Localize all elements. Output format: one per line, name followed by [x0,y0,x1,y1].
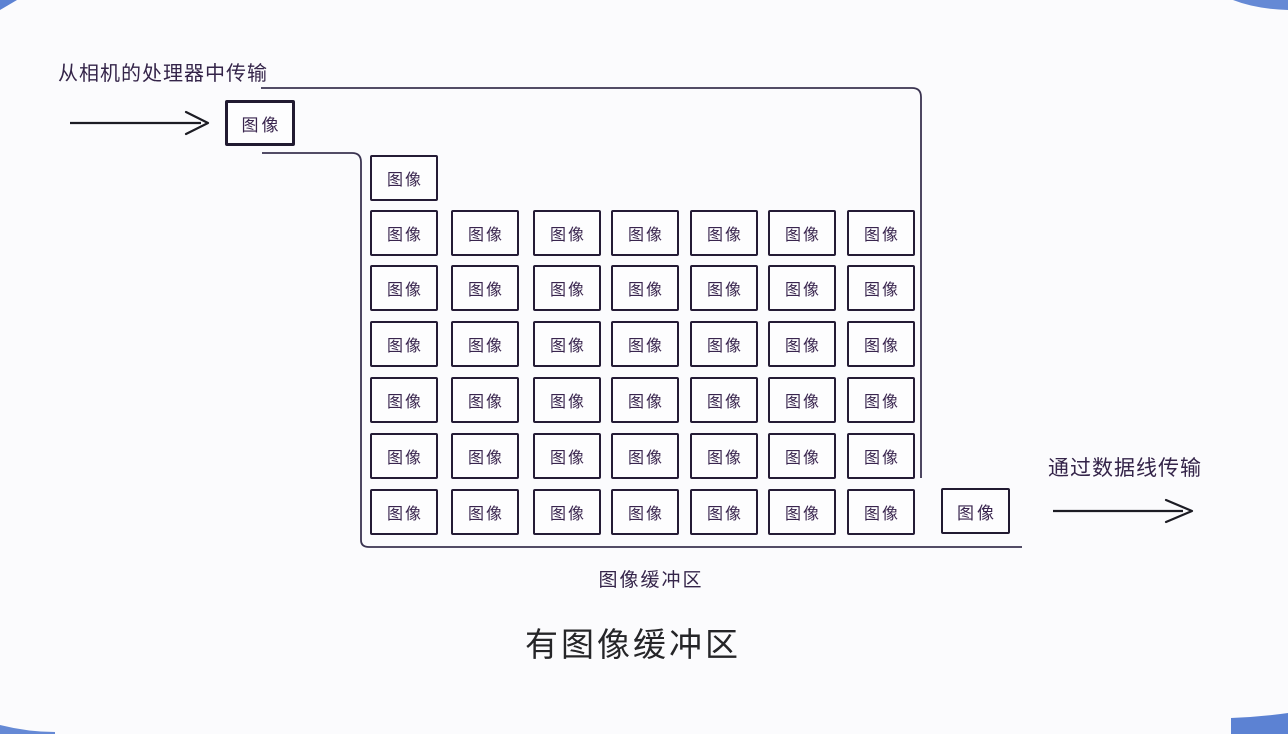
image-cell: 图像 [611,433,679,479]
image-cell: 图像 [768,489,836,535]
image-cell: 图像 [451,321,519,367]
image-cell: 图像 [768,433,836,479]
label-via-cable: 通过数据线传输 [1048,452,1202,482]
image-cell: 图像 [611,265,679,311]
image-cell: 图像 [611,489,679,535]
image-cell: 图像 [533,210,601,256]
buffer-caption: 图像缓冲区 [598,565,703,592]
diagram-title: 有图像缓冲区 [525,618,741,666]
image-cell: 图像 [451,377,519,423]
outgoing-arrow-icon [1053,500,1192,522]
image-cell: 图像 [533,489,601,535]
image-cell: 图像 [451,210,519,256]
image-cell: 图像 [847,321,915,367]
image-cell: 图像 [451,265,519,311]
image-cell: 图像 [768,265,836,311]
incoming-arrow-icon [70,112,208,134]
image-cell: 图像 [847,433,915,479]
image-cell: 图像 [370,210,438,256]
image-cell: 图像 [611,210,679,256]
image-cell: 图像 [370,321,438,367]
corner-accent-bottom-right [1231,713,1288,734]
diagram-canvas: 从相机的处理器中传输 通过数据线传输 图像缓冲区 有图像缓冲区 图像 图像图像图… [0,0,1288,734]
incoming-image-box: 图像 [225,100,295,146]
image-cell: 图像 [690,489,758,535]
image-cell: 图像 [847,377,915,423]
image-cell: 图像 [611,377,679,423]
image-cell: 图像 [847,489,915,535]
image-cell: 图像 [690,321,758,367]
image-cell: 图像 [690,265,758,311]
image-cell: 图像 [533,265,601,311]
image-cell: 图像 [690,433,758,479]
image-cell: 图像 [690,210,758,256]
image-cell: 图像 [847,210,915,256]
image-cell: 图像 [370,433,438,479]
image-cell: 图像 [533,321,601,367]
outgoing-image-box: 图像 [941,488,1010,534]
image-cell: 图像 [768,210,836,256]
label-from-camera: 从相机的处理器中传输 [58,57,268,86]
image-cell: 图像 [451,489,519,535]
corner-accent-bottom-left [0,725,55,734]
image-cell: 图像 [690,377,758,423]
corner-accent-top-right [1233,0,1288,10]
image-cell: 图像 [451,433,519,479]
image-cell: 图像 [768,321,836,367]
image-cell: 图像 [533,433,601,479]
image-cell: 图像 [611,321,679,367]
image-cell: 图像 [768,377,836,423]
image-cell: 图像 [847,265,915,311]
image-cell: 图像 [370,265,438,311]
corner-accent-top-left [0,0,17,10]
image-cell: 图像 [533,377,601,423]
image-cell: 图像 [370,155,438,201]
image-cell: 图像 [370,377,438,423]
image-cell: 图像 [370,489,438,535]
